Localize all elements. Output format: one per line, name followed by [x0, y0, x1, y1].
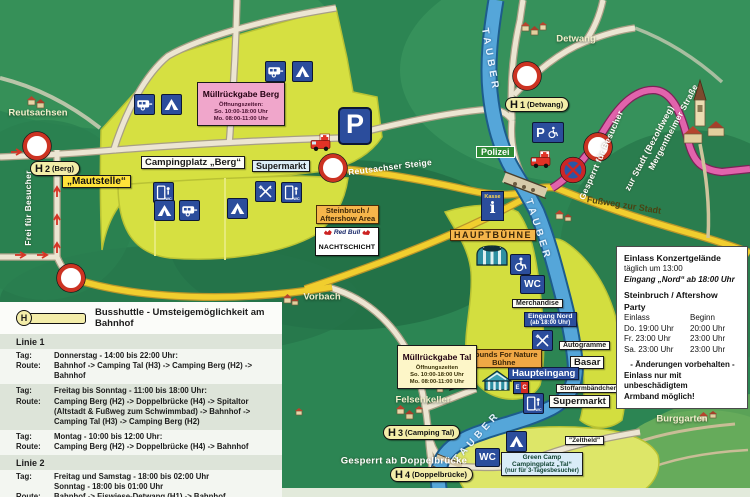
aftershow-do-einlass: Do. 19:00 Uhr: [624, 324, 690, 335]
green-camp-line2: Campingplatz „Tal“: [505, 461, 579, 468]
ec-letter-c: C: [521, 382, 528, 393]
col-einlass: Einlass: [624, 313, 690, 324]
wheelchair-access-icon: [510, 254, 531, 275]
tag-value: Montag - 10:00 bis 12:00 Uhr:: [54, 432, 274, 442]
bus-stop-number: 1: [520, 100, 525, 110]
bus-stop-name: (Doppelbrücke): [412, 470, 467, 479]
linie1-entry-donnerstag: Tag:Donnerstag - 14:00 bis 22:00 Uhr: Ro…: [0, 349, 282, 384]
einlass-note-3: Armband möglich!: [624, 392, 741, 403]
wc-icon-concert: WC: [520, 275, 545, 294]
caravan-icon: [134, 94, 155, 115]
bus-stop-h3-camping-tal: H 3 (Camping Tal): [383, 425, 460, 440]
steinbruch-area-label: Steinbruch / Aftershow Area: [316, 205, 379, 224]
bus-shuttle-legend: H Busshuttle - Umsteigemöglichkeit am Ba…: [0, 302, 282, 488]
bull-icon: [362, 230, 370, 235]
hauptbuehne-label: HAUPTBÜHNE: [450, 229, 536, 241]
legend-pill-bar: [28, 313, 86, 324]
aftershow-sa-einlass: Sa. 23:00 Uhr: [624, 345, 690, 356]
tent-icon: [154, 200, 175, 221]
col-beginn: Beginn: [690, 313, 715, 324]
linie2-entry: Tag:Freitag und Samstag - 18:00 bis 02:0…: [0, 470, 282, 497]
bus-stop-number: 2: [45, 164, 50, 174]
polizei-label: Polizei: [476, 146, 515, 158]
green-camp-line3: (nur für 3-Tagesbesucher): [505, 468, 579, 474]
bus-stop-name: (Berg): [52, 164, 74, 173]
bus-stop-letter: H: [395, 469, 403, 481]
stoffarmbaendchen-label: Stoffarmbändchen: [556, 384, 621, 393]
einlass-info-box: Einlass Konzertgelände täglich um 13:00 …: [616, 246, 748, 409]
muellrueckgabe-berg-box: Müllrückgabe Berg Öffnungszeiten: So. 10…: [197, 82, 285, 126]
tag-value: Donnerstag - 14:00 bis 22:00 Uhr:: [54, 351, 274, 361]
tag-label: Tag:: [16, 386, 52, 396]
supermarkt-berg-label: Supermarkt: [252, 160, 310, 172]
eingang-nord-label: Eingang Nord (ab 18:00 Uhr): [524, 312, 577, 327]
einlass-note-2: Einlass nur mit unbeschädigtem: [624, 371, 741, 392]
einlass-note-1: - Änderungen vorbehalten -: [624, 360, 741, 371]
route-label: Route:: [16, 361, 52, 381]
haupteingang-label: Haupteingang: [508, 367, 579, 380]
sfn-line2: Bühne: [470, 358, 538, 367]
route-label: Route:: [16, 442, 52, 452]
legend-h-circle: H: [16, 310, 32, 326]
supermarkt-tal-label: Supermarkt: [549, 395, 610, 408]
linie1-entry-freitag-sonntag: Tag:Freitag bis Sonntag - 11:00 bis 18:0…: [0, 384, 282, 430]
autogramme-label: Autogramme: [559, 341, 610, 350]
route-value: Bahnhof -> Eiswiese-Detwang (H1) -> Bahn…: [54, 492, 274, 497]
tag-label: Tag:: [16, 472, 52, 482]
tent-icon: [227, 198, 248, 219]
no-stopping-sign: [561, 158, 586, 183]
green-camp-line1: Green Camp: [505, 454, 579, 461]
mautstelle-label: „Mautstelle“: [62, 175, 131, 188]
kasse-info-icon: Kasse i: [481, 191, 504, 221]
sounds-for-nature-label: Sounds For Nature Bühne: [466, 349, 542, 368]
tent-icon: [161, 94, 182, 115]
linie1-entry-montag: Tag:Montag - 10:00 bis 12:00 Uhr: Route:…: [0, 430, 282, 455]
einlass-title: Einlass Konzertgelände: [624, 253, 741, 264]
bus-stop-letter: H: [35, 163, 43, 175]
route-label: Route:: [16, 492, 52, 497]
food-icon-concert: [532, 330, 553, 351]
tag-label-empty: [16, 482, 52, 492]
legend-header: H Busshuttle - Umsteigemöglichkeit am Ba…: [0, 302, 282, 334]
road-label-frei-fuer-besucher: Frei für Besucher: [23, 170, 33, 245]
campingplatz-berg-label: Campingplatz „Berg“: [141, 156, 245, 169]
aftershow-fr-einlass: Fr. 23:00 Uhr: [624, 334, 690, 345]
redbull-text: Red Bull: [334, 229, 360, 236]
bus-stop-h1-detwang: H 1 (Detwang): [505, 97, 569, 112]
village-reutsachsen: Reutsachsen: [8, 108, 67, 119]
muell-berg-hours-mo: Mo. 08:00-11:00 Uhr: [200, 116, 282, 123]
eingang-nord-line2: (ab 18:00 Uhr): [528, 320, 573, 326]
aftershow-do-beginn: 20:00 Uhr: [690, 324, 725, 335]
route-value: Bahnhof -> Camping Tal (H3) -> Camping B…: [54, 361, 274, 381]
muell-tal-hours-mo: Mo. 08:00-11:00 Uhr: [400, 379, 474, 386]
bus-stop-name: (Detwang): [527, 100, 563, 109]
road-label-gesperrt-doppelbruecke: Gesperrt ab Doppelbrücke: [341, 456, 468, 467]
wc-door-icon-tal: WC: [523, 393, 544, 414]
tent-icon-green-camp: [506, 431, 527, 452]
svg-text:WC: WC: [535, 407, 542, 412]
zeltheld-label: "Zeltheld": [565, 436, 604, 445]
route-value: Camping Berg (H2) -> Doppelbrücke (H4) -…: [54, 397, 274, 427]
legend-title: Busshuttle - Umsteigemöglichkeit am Bahn…: [95, 307, 274, 329]
disabled-parking-icon: P: [532, 122, 564, 143]
tent-icon: [292, 61, 313, 82]
bus-stop-letter: H: [510, 99, 518, 111]
parking-letter: P: [536, 125, 545, 140]
tag-value: Freitag und Samstag - 18:00 bis 02:00 Uh…: [54, 472, 274, 482]
muell-tal-title: Müllrückgabe Tal: [403, 352, 472, 362]
steinbruch-line2: Aftershow Area: [320, 214, 375, 223]
village-felsenkeller: Felsenkeller: [396, 395, 451, 406]
festival-map: TAUBER TAUBER TAUBER Reutsachser Steige …: [0, 0, 750, 497]
wc-door-icon: WC: [281, 182, 302, 203]
village-burggarten: Burggarten: [656, 414, 707, 425]
main-stage-icon: [474, 243, 510, 267]
bus-stop-number: 3: [398, 428, 403, 438]
wc-icon-green-camp: WC: [475, 448, 500, 467]
caravan-icon: [179, 200, 200, 221]
village-vorbach: Vorbach: [303, 292, 340, 303]
tag-value: Freitag bis Sonntag - 11:00 bis 18:00 Uh…: [54, 386, 274, 396]
linie-2-heading: Linie 2: [0, 455, 282, 470]
village-detwang: Detwang: [556, 34, 596, 45]
info-icon: i: [489, 200, 495, 216]
green-camp-label: Green Camp Campingplatz „Tal“ (nur für 3…: [501, 452, 583, 476]
aftershow-title: Steinbruch / Aftershow Party: [624, 290, 741, 313]
food-icon: [255, 181, 276, 202]
legend-stop-symbol: H: [16, 310, 86, 326]
svg-text:WC: WC: [293, 196, 300, 201]
einlass-daily: täglich um 13:00: [624, 264, 741, 275]
eingang-nord-line1: Eingang Nord: [528, 313, 573, 320]
muell-tal-hours-so: So. 10:00-18:00 Uhr: [400, 372, 474, 379]
route-value: Camping Berg (H2) -> Doppelbrücke (H4) -…: [54, 442, 274, 452]
linie-1-heading: Linie 1: [0, 334, 282, 349]
nachtschicht-text: NACHTSCHICHT: [319, 244, 375, 251]
merchandise-label: Merchandise: [512, 299, 563, 308]
einlass-nord: Eingang „Nord“ ab 18:00 Uhr: [624, 275, 741, 286]
aftershow-fr-beginn: 23:00 Uhr: [690, 334, 725, 345]
muell-berg-hours-so: So. 10:00-18:00 Uhr: [200, 109, 282, 116]
tag-label: Tag:: [16, 351, 52, 361]
redbull-nachtschicht-logo: Red Bull NACHTSCHICHT: [315, 227, 379, 256]
bus-stop-h2-berg: H 2 (Berg): [30, 161, 80, 176]
bull-icon: [324, 230, 332, 235]
tag-value-2: Sonntag - 18:00 bis 01:00 Uhr: [54, 482, 274, 492]
bus-stop-letter: H: [388, 427, 396, 439]
aftershow-sa-beginn: 23:00 Uhr: [690, 345, 725, 356]
muell-berg-hours-label: Öffnungszeiten:: [200, 102, 282, 109]
muellrueckgabe-tal-box: Müllrückgabe Tal Öffnungszeiten So. 10:0…: [397, 345, 477, 389]
muell-berg-title: Müllrückgabe Berg: [203, 89, 280, 99]
route-label: Route:: [16, 397, 52, 427]
ec-letter-e: E: [514, 382, 521, 393]
bus-stop-h4-doppelbruecke: H 4 (Doppelbrücke): [390, 467, 473, 482]
tag-label: Tag:: [16, 432, 52, 442]
bus-stop-name: (Camping Tal): [405, 428, 454, 437]
muell-tal-hours-label: Öffnungszeiten: [400, 365, 474, 372]
caravan-icon: [265, 61, 286, 82]
wheelchair-icon: [546, 125, 560, 140]
parking-icon: P: [338, 107, 372, 145]
bus-stop-number: 4: [405, 470, 410, 480]
